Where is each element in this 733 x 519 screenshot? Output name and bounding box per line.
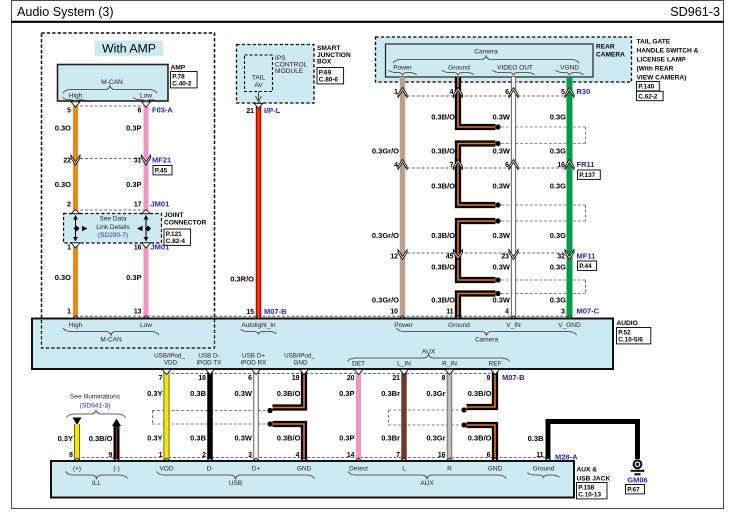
svg-text:0.3B/O: 0.3B/O [277, 434, 301, 443]
svg-text:9: 9 [109, 452, 113, 459]
svg-text:DET: DET [352, 361, 365, 368]
svg-text:6: 6 [505, 89, 509, 96]
svg-text:GM06: GM06 [627, 476, 647, 485]
svg-text:USB/iPod_: USB/iPod_ [154, 353, 185, 360]
svg-text:0.3B/O: 0.3B/O [468, 389, 492, 398]
svg-text:0.3W: 0.3W [492, 231, 510, 240]
svg-text:R_IN: R_IN [442, 361, 457, 368]
svg-text:22: 22 [63, 158, 71, 165]
svg-text:0.3W: 0.3W [234, 434, 252, 443]
svg-text:18: 18 [198, 375, 206, 382]
svg-text:See Data: See Data [99, 216, 126, 223]
svg-text:0.3G: 0.3G [550, 231, 566, 240]
svg-text:8: 8 [442, 375, 446, 382]
svg-text:SMART: SMART [317, 45, 340, 52]
svg-text:See Illuminations: See Illuminations [70, 394, 121, 401]
svg-text:(SD200-7): (SD200-7) [98, 232, 128, 239]
svg-text:0.3W: 0.3W [234, 389, 252, 398]
svg-text:0.3P: 0.3P [126, 273, 141, 282]
svg-text:L: L [402, 466, 406, 473]
svg-text:REF: REF [489, 361, 502, 368]
svg-text:Power: Power [394, 322, 413, 329]
svg-text:0.3B: 0.3B [528, 434, 544, 443]
svg-text:M07-B: M07-B [502, 373, 525, 382]
svg-text:AUDIO: AUDIO [617, 320, 638, 327]
svg-text:With AMP: With AMP [102, 42, 156, 56]
svg-text:0.3G: 0.3G [550, 147, 566, 156]
svg-text:ILL: ILL [92, 480, 101, 487]
svg-text:D+: D+ [252, 466, 261, 473]
svg-text:32: 32 [557, 254, 565, 261]
svg-text:MF21: MF21 [152, 156, 171, 165]
svg-text:12: 12 [390, 254, 398, 261]
svg-text:P.137: P.137 [579, 172, 595, 179]
svg-text:AV: AV [254, 82, 263, 89]
svg-text:FR11: FR11 [577, 160, 595, 169]
svg-text:Camera: Camera [475, 337, 499, 344]
svg-text:1: 1 [394, 89, 398, 96]
svg-text:USB JACK: USB JACK [577, 476, 611, 483]
svg-text:C.62-2: C.62-2 [638, 94, 658, 101]
svg-text:0.3Gr: 0.3Gr [426, 389, 445, 398]
svg-text:iPOD RX: iPOD RX [241, 360, 267, 367]
svg-text:VOD: VOD [159, 466, 173, 473]
svg-text:0.3R/O: 0.3R/O [230, 275, 254, 284]
svg-text:AUX: AUX [420, 480, 434, 487]
svg-text:TAIL GATE: TAIL GATE [637, 39, 671, 46]
svg-text:C.10-13: C.10-13 [578, 492, 601, 499]
svg-text:Low: Low [140, 322, 152, 329]
svg-text:USB D-: USB D- [198, 353, 219, 360]
svg-text:0.3G: 0.3G [550, 263, 566, 272]
svg-text:5: 5 [561, 89, 565, 96]
svg-text:0.3B/O: 0.3B/O [431, 231, 455, 240]
svg-text:0.3W: 0.3W [492, 182, 510, 191]
svg-text:19: 19 [292, 375, 300, 382]
svg-text:USB: USB [229, 480, 242, 487]
svg-text:VGND: VGND [560, 65, 579, 72]
svg-text:0.3G: 0.3G [550, 182, 566, 191]
svg-text:M07-C: M07-C [577, 307, 600, 316]
svg-text:M-CAN: M-CAN [101, 79, 123, 86]
svg-text:0.3G: 0.3G [550, 296, 566, 305]
svg-text:0.3O: 0.3O [55, 124, 71, 133]
svg-text:0.3Y: 0.3Y [147, 434, 162, 443]
svg-text:R30: R30 [577, 87, 591, 96]
svg-text:11: 11 [446, 309, 453, 316]
svg-text:0.3Br: 0.3Br [381, 434, 400, 443]
svg-text:5: 5 [67, 108, 71, 115]
svg-text:R: R [447, 466, 452, 473]
svg-text:0.3P: 0.3P [339, 389, 354, 398]
svg-text:Audio System (3): Audio System (3) [17, 5, 114, 19]
svg-text:0.3B/O: 0.3B/O [277, 389, 301, 398]
svg-text:USB/iPod_: USB/iPod_ [284, 353, 315, 360]
svg-text:C.80-6: C.80-6 [319, 77, 339, 84]
svg-text:SD961-3: SD961-3 [670, 5, 720, 19]
svg-text:1: 1 [67, 245, 71, 252]
svg-text:Link Details: Link Details [96, 224, 130, 231]
svg-text:23: 23 [501, 254, 509, 261]
svg-text:0.3B/O: 0.3B/O [431, 147, 455, 156]
svg-text:(SD941-3): (SD941-3) [80, 403, 110, 410]
svg-text:0.3O: 0.3O [55, 180, 71, 189]
svg-text:L_IN: L_IN [397, 361, 411, 368]
svg-text:I/P-L: I/P-L [264, 106, 281, 115]
svg-text:13: 13 [134, 309, 142, 316]
svg-text:C.40-2: C.40-2 [172, 81, 192, 88]
svg-text:0.3B/O: 0.3B/O [89, 434, 113, 443]
svg-text:0.3Y: 0.3Y [147, 389, 162, 398]
svg-text:21: 21 [392, 375, 400, 382]
svg-text:P.140: P.140 [638, 84, 654, 91]
svg-text:Power: Power [393, 65, 412, 72]
svg-text:D-: D- [207, 466, 214, 473]
svg-text:MODULE: MODULE [275, 68, 304, 75]
svg-text:6: 6 [487, 452, 491, 459]
svg-text:P.67: P.67 [627, 487, 640, 494]
svg-text:P.44: P.44 [579, 263, 592, 270]
svg-text:BOX: BOX [317, 59, 332, 66]
svg-text:0.3B/O: 0.3B/O [431, 182, 455, 191]
svg-text:0.3G: 0.3G [550, 113, 566, 122]
svg-text:6: 6 [505, 162, 509, 169]
svg-text:P.158: P.158 [578, 485, 594, 492]
svg-text:0.3Gr: 0.3Gr [426, 434, 445, 443]
svg-text:6: 6 [138, 108, 142, 115]
svg-text:7: 7 [159, 375, 163, 382]
svg-text:0.3P: 0.3P [339, 434, 354, 443]
svg-text:6: 6 [248, 375, 252, 382]
svg-text:17: 17 [134, 202, 142, 209]
svg-text:0.3B/O: 0.3B/O [431, 263, 455, 272]
svg-text:16: 16 [557, 162, 565, 169]
svg-text:High: High [69, 93, 83, 100]
svg-text:USB D+: USB D+ [242, 353, 265, 360]
svg-text:0.3Br: 0.3Br [381, 389, 400, 398]
svg-text:JM01: JM01 [151, 200, 170, 209]
svg-text:0.3P: 0.3P [126, 124, 141, 133]
svg-text:P.78: P.78 [172, 74, 185, 81]
svg-text:21: 21 [246, 108, 254, 115]
svg-text:F03-A: F03-A [152, 106, 173, 115]
svg-text:8: 8 [69, 452, 73, 459]
svg-text:20: 20 [347, 375, 355, 382]
svg-text:16: 16 [134, 245, 142, 252]
svg-text:1: 1 [67, 309, 71, 316]
svg-text:M-CAN: M-CAN [100, 337, 122, 344]
svg-text:7: 7 [450, 162, 454, 169]
svg-text:0.3Gr/O: 0.3Gr/O [372, 147, 399, 156]
svg-text:7: 7 [396, 452, 400, 459]
svg-text:P.121: P.121 [166, 231, 182, 238]
svg-text:3: 3 [248, 452, 252, 459]
svg-text:GND: GND [297, 466, 312, 473]
svg-text:VIEW CAMERA): VIEW CAMERA) [637, 75, 687, 82]
svg-text:VDD: VDD [164, 360, 178, 367]
svg-text:31: 31 [134, 158, 142, 165]
svg-text:Ground: Ground [448, 322, 470, 329]
svg-text:CONNECTOR: CONNECTOR [164, 220, 207, 227]
svg-text:0.3B/O: 0.3B/O [431, 296, 455, 305]
svg-text:P.45: P.45 [155, 168, 168, 175]
svg-text:JM01: JM01 [151, 243, 170, 252]
svg-text:0.3Gr/O: 0.3Gr/O [372, 231, 399, 240]
svg-text:0.3Y: 0.3Y [58, 434, 73, 443]
svg-text:0.3B/O: 0.3B/O [468, 434, 492, 443]
svg-text:0.3W: 0.3W [492, 113, 510, 122]
svg-text:JOINT: JOINT [164, 212, 183, 219]
svg-text:(+): (+) [73, 466, 81, 473]
svg-text:14: 14 [347, 452, 355, 459]
svg-text:iPOD TX: iPOD TX [197, 360, 223, 367]
svg-text:3: 3 [561, 309, 565, 316]
svg-text:(With REAR: (With REAR [637, 66, 674, 73]
svg-text:CAMERA: CAMERA [596, 52, 625, 59]
svg-text:Autolight_In: Autolight_In [241, 322, 276, 329]
svg-text:4: 4 [394, 162, 398, 169]
svg-text:Ground: Ground [448, 65, 470, 72]
svg-text:P.69: P.69 [319, 70, 332, 77]
svg-text:P.52: P.52 [618, 330, 631, 337]
svg-text:4: 4 [450, 89, 454, 96]
svg-text:AMP: AMP [171, 65, 186, 72]
svg-text:1: 1 [159, 452, 163, 459]
svg-text:HANDLE SWITCH &: HANDLE SWITCH & [637, 48, 699, 55]
svg-text:GND: GND [294, 360, 308, 367]
svg-text:0.3B: 0.3B [190, 389, 206, 398]
svg-text:4: 4 [296, 452, 300, 459]
svg-text:2: 2 [67, 202, 71, 209]
svg-text:0.3O: 0.3O [55, 273, 71, 282]
svg-text:11: 11 [536, 452, 543, 459]
svg-text:Camera: Camera [474, 49, 498, 56]
svg-text:16: 16 [438, 452, 446, 459]
svg-text:0.3B: 0.3B [190, 434, 206, 443]
svg-text:0.3B/O: 0.3B/O [431, 113, 455, 122]
svg-text:Low: Low [140, 93, 152, 100]
svg-text:MF11: MF11 [577, 252, 596, 261]
svg-text:0.3W: 0.3W [492, 263, 510, 272]
svg-text:9: 9 [487, 375, 491, 382]
svg-text:45: 45 [446, 254, 454, 261]
svg-text:0.3Gr/O: 0.3Gr/O [372, 296, 399, 305]
svg-text:High: High [69, 322, 83, 329]
svg-text:Ground: Ground [533, 466, 555, 473]
svg-text:4: 4 [505, 309, 509, 316]
svg-text:2: 2 [202, 452, 206, 459]
svg-text:REAR: REAR [596, 44, 615, 51]
svg-text:VIDEO OUT: VIDEO OUT [497, 65, 533, 72]
svg-text:LICENSE LAMP: LICENSE LAMP [637, 57, 687, 64]
svg-text:(-): (-) [113, 466, 120, 473]
svg-text:0.3W: 0.3W [492, 147, 510, 156]
svg-text:TAIL: TAIL [252, 75, 266, 82]
svg-text:15: 15 [246, 309, 254, 316]
svg-text:0.3P: 0.3P [126, 180, 141, 189]
svg-text:C.10-5/6: C.10-5/6 [618, 337, 643, 344]
svg-text:Detect: Detect [349, 466, 368, 473]
svg-text:M07-B: M07-B [264, 307, 287, 316]
svg-text:0.3W: 0.3W [492, 296, 510, 305]
svg-text:V_IN: V_IN [506, 322, 521, 329]
svg-text:GND: GND [488, 466, 503, 473]
svg-text:V_GND: V_GND [558, 322, 581, 329]
svg-text:AUX &: AUX & [577, 467, 598, 474]
svg-text:10: 10 [390, 309, 398, 316]
